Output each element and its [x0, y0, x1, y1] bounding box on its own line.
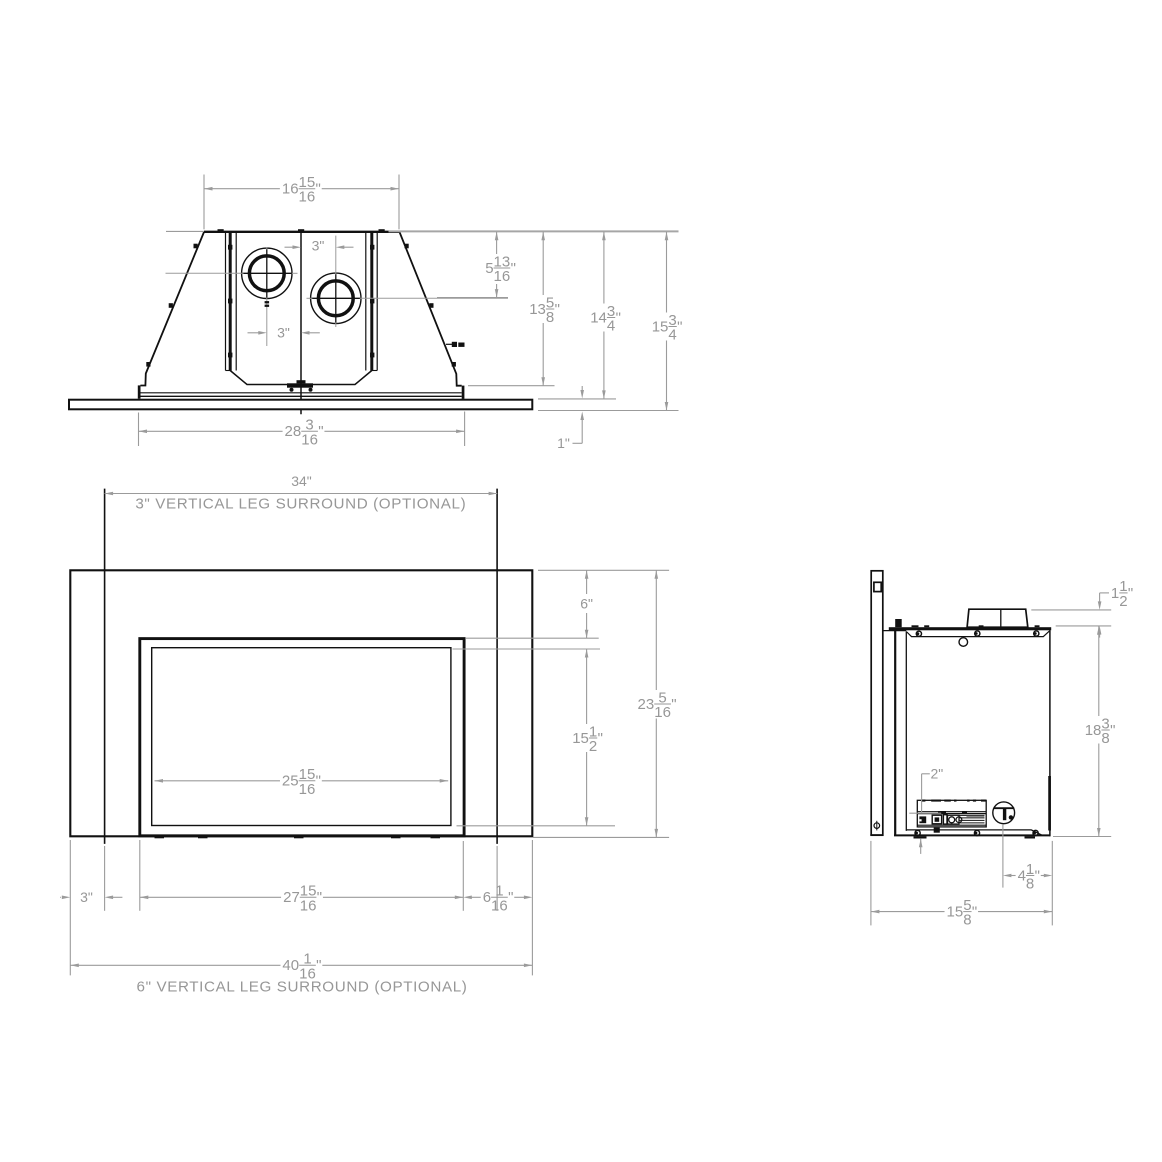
- svg-text:": ": [1128, 585, 1133, 602]
- svg-text:23: 23: [638, 696, 655, 713]
- svg-text:13: 13: [529, 301, 546, 318]
- svg-text:16: 16: [299, 189, 316, 206]
- svg-text:16: 16: [282, 181, 299, 198]
- svg-text:16: 16: [491, 897, 508, 914]
- svg-text:3": 3": [80, 889, 93, 905]
- svg-text:": ": [316, 773, 321, 790]
- svg-text:": ": [318, 423, 323, 440]
- svg-text:4: 4: [668, 327, 676, 344]
- svg-text:25: 25: [282, 773, 299, 790]
- svg-text:40: 40: [282, 957, 299, 974]
- svg-text:": ": [508, 889, 513, 906]
- svg-text:8: 8: [1026, 876, 1034, 893]
- svg-text:": ": [316, 181, 321, 198]
- svg-text:1: 1: [1111, 585, 1119, 602]
- svg-text:": ": [1110, 722, 1115, 739]
- svg-text:": ": [511, 260, 516, 277]
- svg-text:": ": [1035, 867, 1040, 884]
- svg-text:15: 15: [572, 730, 589, 747]
- svg-text:4: 4: [607, 318, 615, 335]
- svg-text:16: 16: [301, 431, 318, 448]
- svg-text:27: 27: [283, 889, 300, 906]
- svg-text:2": 2": [931, 765, 944, 781]
- svg-text:28: 28: [285, 423, 302, 440]
- svg-text:": ": [616, 309, 621, 326]
- svg-text:16: 16: [300, 897, 317, 914]
- svg-text:": ": [671, 696, 676, 713]
- svg-text:3" VERTICAL LEG SURROUND (OPTI: 3" VERTICAL LEG SURROUND (OPTIONAL): [135, 495, 466, 512]
- svg-text:4: 4: [1018, 867, 1026, 884]
- svg-text:16: 16: [654, 704, 671, 721]
- svg-text:15: 15: [652, 318, 669, 335]
- svg-text:34": 34": [291, 473, 312, 489]
- svg-text:15: 15: [947, 904, 964, 921]
- svg-text:2: 2: [1119, 593, 1127, 610]
- svg-text:3": 3": [277, 324, 290, 340]
- svg-text:": ": [317, 889, 322, 906]
- svg-text:": ": [972, 904, 977, 921]
- svg-text:1": 1": [557, 435, 570, 451]
- svg-text:6" VERTICAL LEG SURROUND (OPTI: 6" VERTICAL LEG SURROUND (OPTIONAL): [137, 978, 468, 995]
- svg-text:": ": [316, 957, 321, 974]
- svg-text:3": 3": [312, 237, 325, 253]
- svg-text:8: 8: [1101, 730, 1109, 747]
- svg-text:14: 14: [590, 309, 607, 326]
- svg-text:6": 6": [580, 595, 593, 611]
- svg-text:5: 5: [485, 260, 493, 277]
- svg-text:16: 16: [494, 268, 511, 285]
- svg-text:6: 6: [483, 889, 491, 906]
- svg-text:2: 2: [589, 738, 597, 755]
- svg-text:": ": [598, 730, 603, 747]
- svg-text:": ": [555, 301, 560, 318]
- svg-text:16: 16: [299, 781, 316, 798]
- svg-text:8: 8: [963, 912, 971, 929]
- svg-text:8: 8: [546, 309, 554, 326]
- svg-text:18: 18: [1085, 722, 1102, 739]
- svg-text:": ": [677, 318, 682, 335]
